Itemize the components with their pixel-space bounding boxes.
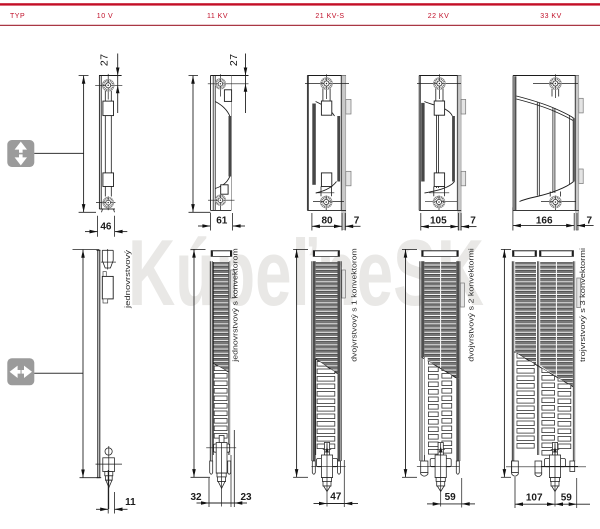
svg-text:11 KV: 11 KV <box>207 13 228 20</box>
svg-text:11: 11 <box>125 497 136 508</box>
svg-text:10 V: 10 V <box>97 13 113 20</box>
svg-text:61: 61 <box>216 215 228 226</box>
svg-text:166: 166 <box>536 215 553 226</box>
svg-text:33 KV: 33 KV <box>540 13 562 20</box>
svg-text:7: 7 <box>587 215 593 226</box>
svg-text:jednovrstvový s konvektorom: jednovrstvový s konvektorom <box>231 248 240 363</box>
svg-text:59: 59 <box>445 492 457 503</box>
svg-text:27: 27 <box>228 53 240 66</box>
svg-text:46: 46 <box>100 222 112 233</box>
svg-text:jednovrstvový: jednovrstvový <box>123 250 132 309</box>
svg-text:7: 7 <box>354 215 360 226</box>
svg-text:107: 107 <box>526 493 543 504</box>
svg-text:80: 80 <box>321 215 333 226</box>
svg-text:TYP: TYP <box>10 13 25 20</box>
svg-text:dvojvrstvový s 2 konvektormi: dvojvrstvový s 2 konvektormi <box>467 248 476 362</box>
svg-text:21 KV-S: 21 KV-S <box>315 13 344 20</box>
svg-text:22 KV: 22 KV <box>428 13 450 20</box>
svg-text:27: 27 <box>98 53 110 66</box>
svg-text:59: 59 <box>561 493 573 504</box>
svg-text:32: 32 <box>190 492 202 503</box>
svg-text:dvojvrstvový s 1 konvektorom: dvojvrstvový s 1 konvektorom <box>350 248 359 362</box>
svg-text:47: 47 <box>330 492 342 503</box>
svg-text:105: 105 <box>430 215 447 226</box>
svg-text:trojvrstvový s 3 konvektormi: trojvrstvový s 3 konvektormi <box>578 248 587 362</box>
svg-text:23: 23 <box>240 492 252 503</box>
svg-text:7: 7 <box>470 215 476 226</box>
